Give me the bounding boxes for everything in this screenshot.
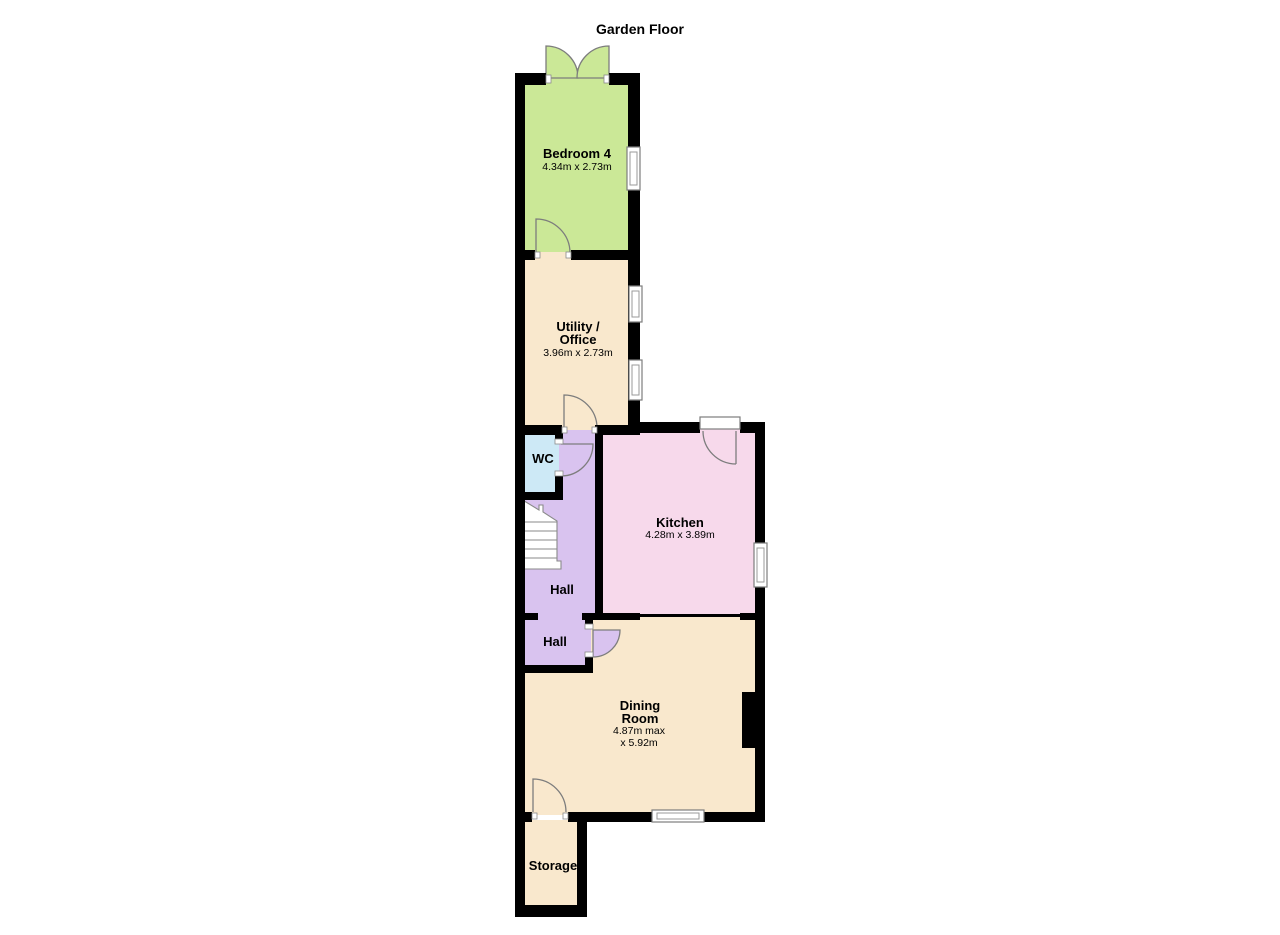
utility-window-lower-pane [632,365,639,395]
bedroom4-dims: 4.34m x 2.73m [542,161,612,173]
kitchen-door-frame [700,417,740,429]
floorplan-svg: Garden Floor Bedroom 4 4.34m x 2.73m Uti… [0,0,1280,930]
dining-dims-line1: 4.87m max [613,725,666,737]
kitchen-window-pane [757,548,764,582]
jamb [535,252,540,258]
utility-label-line2: Office [560,332,597,347]
french-door-right [577,46,609,78]
wall-segment [515,492,563,500]
jamb [563,813,568,819]
bedroom4-window-pane [630,152,637,185]
wall-segment [703,812,765,822]
jamb [592,427,597,433]
wall-segment [640,614,740,617]
jamb [585,652,593,657]
kitchen-label: Kitchen [656,515,704,530]
wall-segment [515,613,538,620]
wall-segment [571,250,632,260]
kitchen-dims: 4.28m x 3.89m [645,529,715,541]
hall2-label: Hall [543,634,567,649]
jamb [566,252,571,258]
wall-segment [628,422,700,433]
jamb [555,439,563,444]
chimney-breast [742,692,757,748]
jamb [585,624,593,629]
plan-title: Garden Floor [596,21,684,37]
wall-segment [515,812,532,822]
french-door-left [546,46,578,78]
wall-segment [755,422,765,822]
wall-segment [515,665,593,673]
jamb [546,75,551,83]
dining-label-line2: Room [622,711,659,726]
wc-label: WC [532,451,554,466]
wall-segment [577,812,587,917]
jamb [532,813,537,819]
jamb [555,471,563,476]
wall-segment [595,425,603,620]
wall-segment [515,905,587,917]
floorplan-page: Garden Floor Bedroom 4 4.34m x 2.73m Uti… [0,0,1280,930]
bedroom4-label: Bedroom 4 [543,146,612,161]
jamb [604,75,609,83]
dining-window-pane [657,813,699,819]
jamb [562,427,567,433]
utility-window-upper-pane [632,291,639,317]
wall-segment [595,613,640,620]
wall-segment [523,250,535,260]
storage-label: Storage [529,858,577,873]
hall1-label: Hall [550,582,574,597]
wall-segment [740,613,765,620]
utility-dims: 3.96m x 2.73m [543,347,613,359]
dining-dims-line2: x 5.92m [620,737,658,749]
